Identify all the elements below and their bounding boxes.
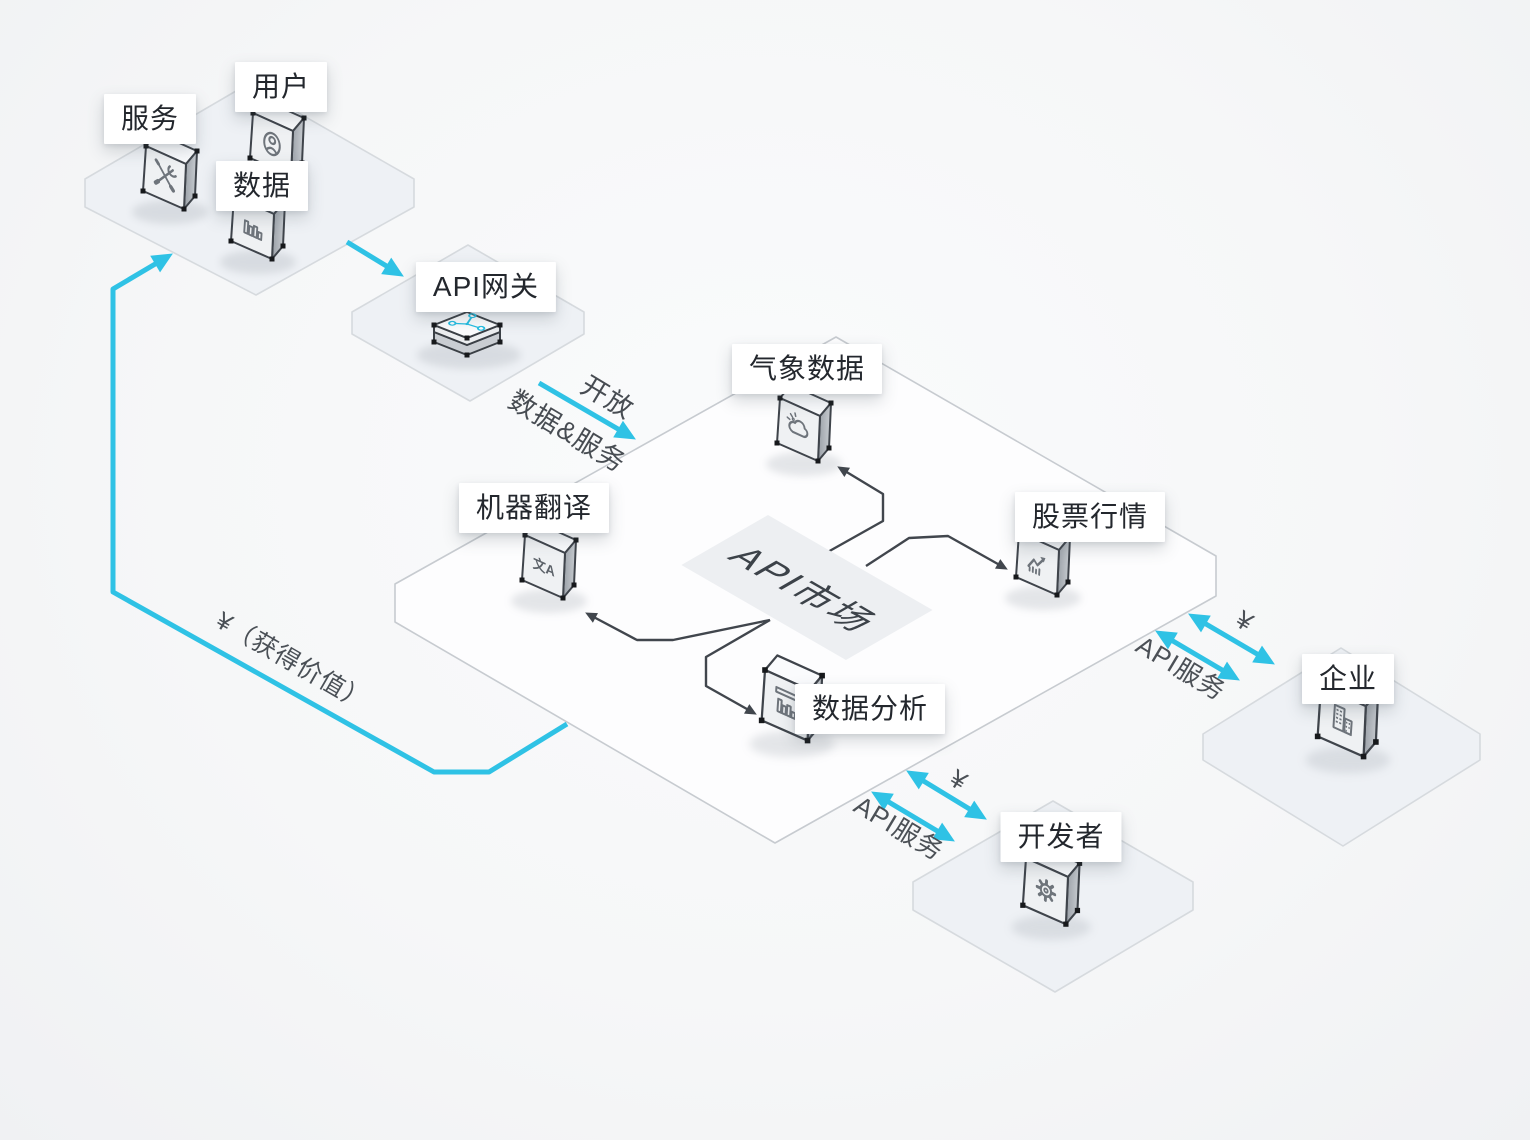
node-label-card-analysis: 数据分析	[795, 684, 945, 734]
node-label-card-service: 服务	[104, 94, 196, 144]
diagram-canvas: 文A	[0, 0, 1530, 1140]
node-label-card-user: 用户	[235, 62, 327, 112]
node-label-card-stock: 股票行情	[1015, 492, 1165, 542]
edge-enterprise-fee	[1194, 617, 1269, 661]
node-label-card-developer: 开发者	[1000, 812, 1121, 862]
node-label-card-gateway: API网关	[416, 262, 556, 312]
node-label-card-data: 数据	[216, 161, 308, 211]
node-label-card-translate: 机器翻译	[459, 483, 609, 533]
edge-developer-fee	[912, 774, 981, 816]
node-label-card-enterprise: 企业	[1302, 654, 1394, 704]
node-label-card-weather: 气象数据	[732, 344, 882, 394]
edge-providers-to-gateway	[347, 242, 398, 273]
